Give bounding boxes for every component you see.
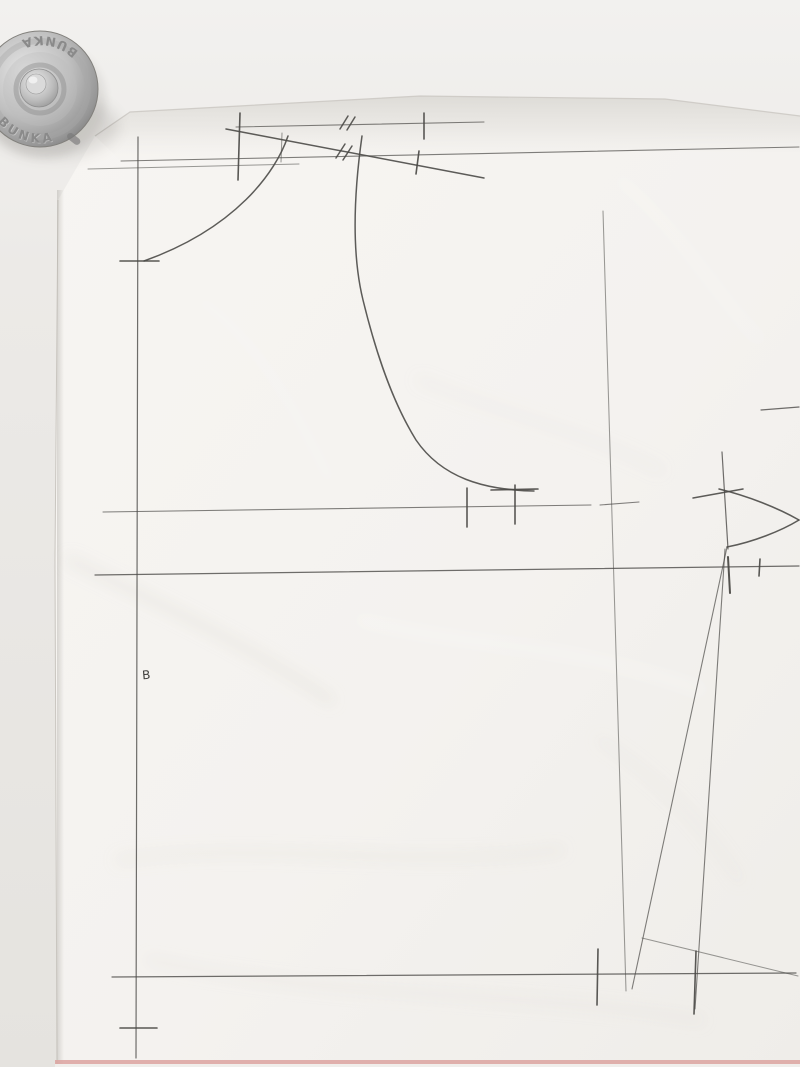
bust-line-tick <box>759 559 760 576</box>
paper-left-edge-shadow <box>57 190 64 1067</box>
photo-canvas: B BUNKA BUNKA BUNKA <box>0 0 800 1067</box>
waist-tick-1 <box>597 949 598 1005</box>
paper-bottom-pink-edge <box>55 1060 800 1064</box>
weight-knob-highlight <box>29 77 38 84</box>
pattern-piece-label: B <box>141 668 150 683</box>
pattern-paper <box>55 96 800 1067</box>
pattern-drafting-photo: B BUNKA BUNKA BUNKA <box>0 0 800 1067</box>
weight-knob <box>26 74 46 94</box>
